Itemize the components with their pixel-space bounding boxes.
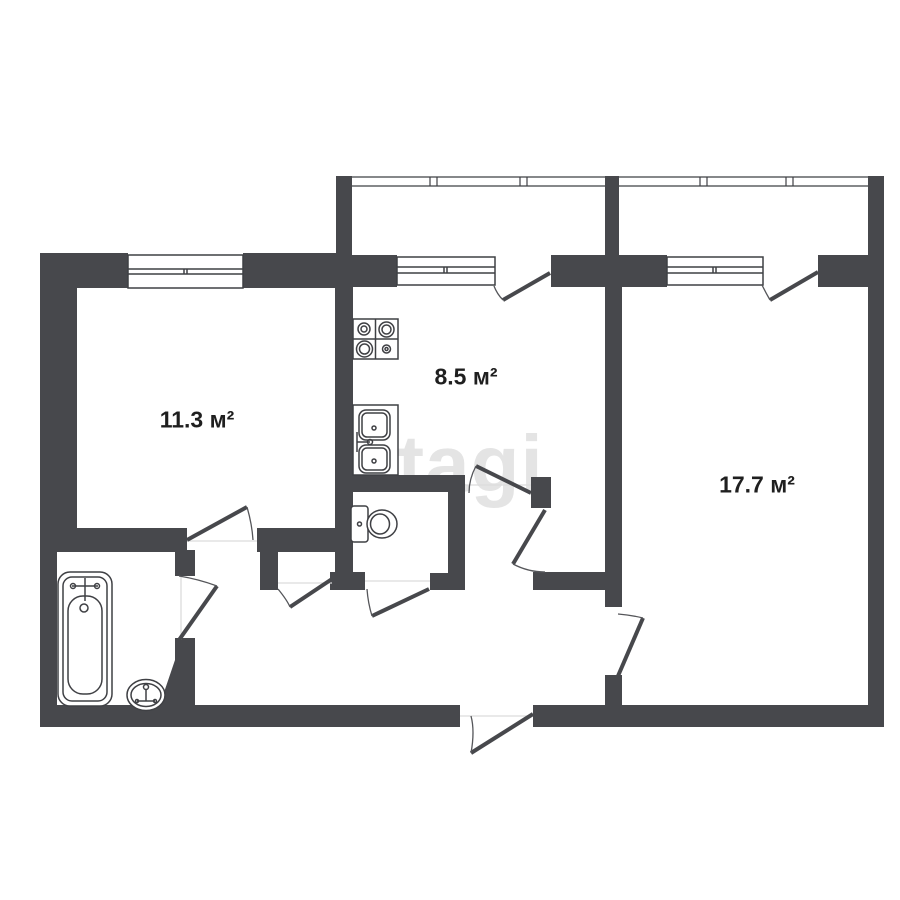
- washbasin-icon: [127, 680, 165, 711]
- door-wc: [367, 589, 429, 616]
- stove-icon: [353, 319, 398, 359]
- door-bathroom: [179, 576, 217, 640]
- door-entrance: [471, 714, 533, 753]
- window-bedroom: [667, 257, 763, 285]
- bathtub-icon: [58, 572, 112, 706]
- door-living-room: [187, 507, 253, 540]
- room-label-bedroom: 17.7 м²: [719, 472, 795, 499]
- door-kitchen: [469, 466, 531, 493]
- room-label-kitchen: 8.5 м²: [434, 364, 497, 391]
- floor-plan-drawing: [0, 0, 900, 900]
- door-balcony-kitchen: [494, 273, 550, 300]
- window-living-room: [128, 255, 243, 288]
- room-label-living-room: 11.3 м²: [160, 407, 235, 434]
- floor-plan-page: { "watermark": { "text": "etagi" }, "roo…: [0, 0, 900, 900]
- door-bedroom: [618, 614, 643, 676]
- door-balcony-bedroom: [762, 272, 818, 300]
- window-kitchen: [397, 257, 495, 285]
- toilet-icon: [351, 506, 397, 542]
- kitchen-sink-icon: [353, 405, 398, 475]
- door-corridor-right: [513, 510, 545, 572]
